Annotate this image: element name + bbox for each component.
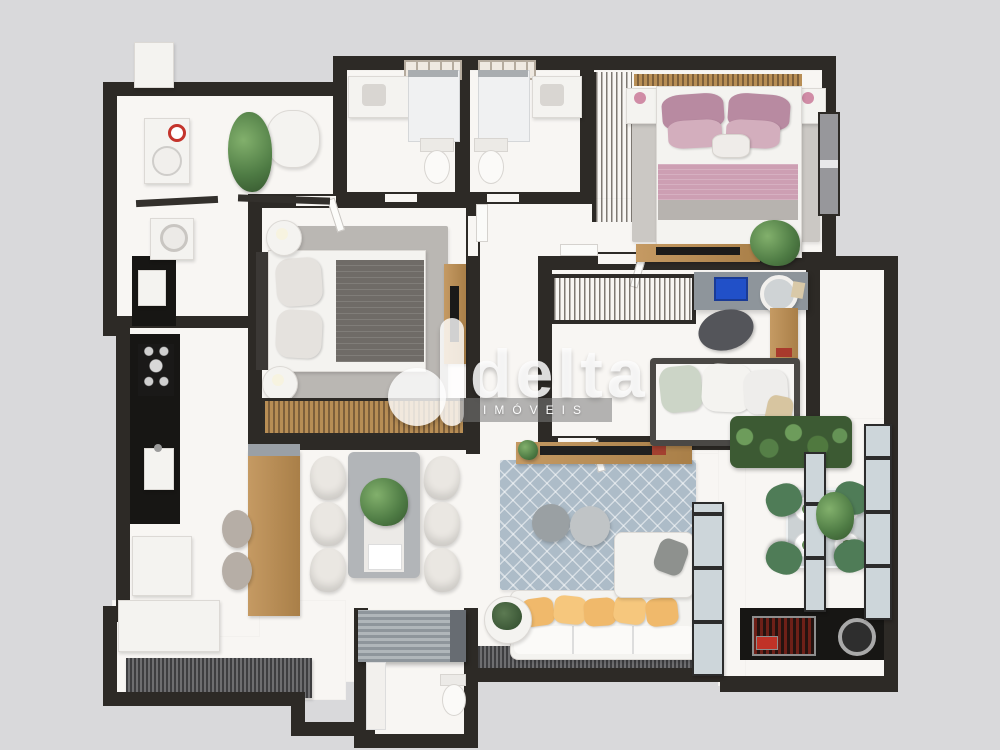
- sliding-glass-door-living: [692, 502, 724, 676]
- balcony-shrub: [816, 492, 854, 540]
- shower-left-bath: [408, 70, 460, 142]
- pillow-master-2: [275, 309, 323, 359]
- ac-fan-icon: [152, 146, 182, 176]
- sofa-pillow-yellow-5: [645, 596, 680, 627]
- sink-right-bath: [540, 84, 564, 106]
- cooktop: [138, 344, 174, 396]
- open-wardrobe-office: [550, 274, 696, 324]
- dining-tray: [368, 544, 402, 570]
- toilet-right-bath: [478, 150, 504, 184]
- wc-toilet: [442, 684, 466, 716]
- kitchen-faucet-icon: [154, 444, 162, 452]
- wc-counter: [366, 662, 386, 730]
- floor-balcony-top: [818, 262, 892, 434]
- bbq-sink: [838, 618, 876, 656]
- sofa-pillow-yellow-4: [612, 594, 648, 626]
- wall-bedroom-pink-top: [590, 56, 836, 70]
- island-stool-1: [222, 510, 252, 548]
- laptop: [714, 277, 748, 301]
- console-plant: [518, 440, 538, 460]
- pillow-sage: [658, 364, 705, 414]
- plant-pink-bedroom: [750, 220, 800, 266]
- sofa-seat-cushions: [514, 626, 694, 654]
- wall-service-left: [103, 82, 117, 336]
- laundry-sink: [138, 270, 166, 306]
- sofa-pillow-yellow-2: [553, 594, 588, 625]
- watermark-subtitle: IMÓVEIS: [460, 398, 612, 422]
- wall-kitchen-left: [116, 327, 130, 622]
- shower-right-bath: [478, 70, 530, 142]
- headboard-pink-bedroom: [634, 74, 802, 86]
- window-pink-bedroom: [818, 112, 840, 216]
- side-table-flowers: [492, 602, 522, 630]
- kitchen-island-cap: [248, 444, 300, 456]
- shower-rail-right: [478, 70, 528, 77]
- water-heater: [266, 110, 320, 168]
- flower-pot-left: [634, 92, 646, 104]
- door-gap-bath-right: [487, 194, 519, 202]
- dining-centerpiece-plant: [360, 478, 408, 526]
- wall-balcony-top: [818, 256, 898, 270]
- wall-bottom-left: [103, 692, 305, 706]
- floor-plan-render: delta IMÓVEIS: [0, 0, 1000, 750]
- fridge-top-box: [134, 42, 174, 88]
- bbq-grill-badge: [756, 636, 778, 650]
- tv-pink-bedroom: [656, 247, 740, 255]
- wall-bath-left: [333, 56, 347, 202]
- watermark-logo-circle: [388, 368, 446, 426]
- throw-gray: [658, 200, 798, 220]
- toilet-left-bath: [424, 150, 450, 184]
- island-stool-2: [222, 552, 252, 590]
- entry-sideboard-side: [450, 610, 466, 662]
- wall-balcony-bottom: [720, 676, 898, 692]
- entry-ledge: [118, 600, 220, 652]
- door-panel-hallway: [476, 204, 488, 242]
- pouf-2: [570, 506, 610, 546]
- ac-brand-badge: [168, 124, 186, 142]
- console-red-book: [652, 446, 666, 455]
- sink-left-bath: [362, 84, 386, 106]
- shelf-red-book: [776, 348, 792, 357]
- wall-living-bottom: [466, 668, 724, 682]
- wall-entry-left: [103, 606, 117, 706]
- sofa-pillow-yellow-3: [583, 597, 617, 627]
- pouf-1: [532, 504, 570, 542]
- door-gap-bedroom-pink: [598, 254, 636, 264]
- balcony-glass-door: [864, 424, 892, 620]
- pillow-roll: [712, 134, 750, 158]
- balcony-hedge-planter: [730, 416, 852, 468]
- flower-pot-right: [802, 92, 814, 104]
- shower-rail-left: [408, 70, 458, 77]
- pillow-master-1: [274, 256, 323, 307]
- door-gap-bath-left: [385, 194, 417, 202]
- kitchen-island: [248, 450, 300, 616]
- door-panel-hallway-2: [560, 244, 598, 256]
- throw-pink: [658, 164, 798, 200]
- kitchen-appliance: [132, 536, 192, 596]
- blanket-master: [336, 260, 424, 362]
- kitchen-sink: [144, 448, 174, 490]
- service-plant: [228, 112, 272, 192]
- washer-door-icon: [160, 224, 188, 252]
- wall-wc-bottom: [354, 734, 478, 748]
- lamp-master-1: [276, 228, 288, 240]
- lamp-master-2: [272, 374, 284, 386]
- tv-living: [540, 446, 656, 455]
